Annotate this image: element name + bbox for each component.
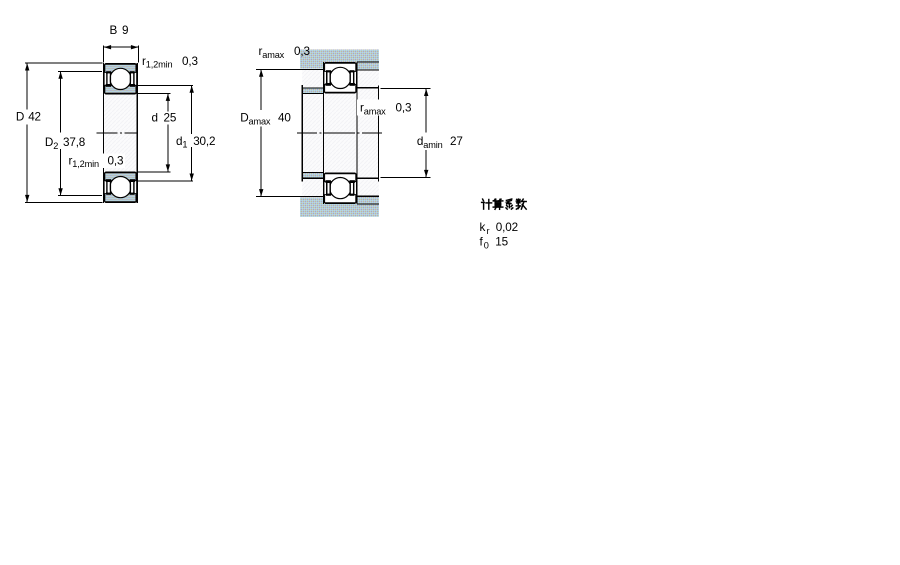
svg-text:D237,8: D237,8 xyxy=(45,136,85,151)
svg-text:d130,2: d130,2 xyxy=(176,135,215,150)
svg-text:d25: d25 xyxy=(152,112,177,125)
svg-text:D42: D42 xyxy=(16,111,41,124)
